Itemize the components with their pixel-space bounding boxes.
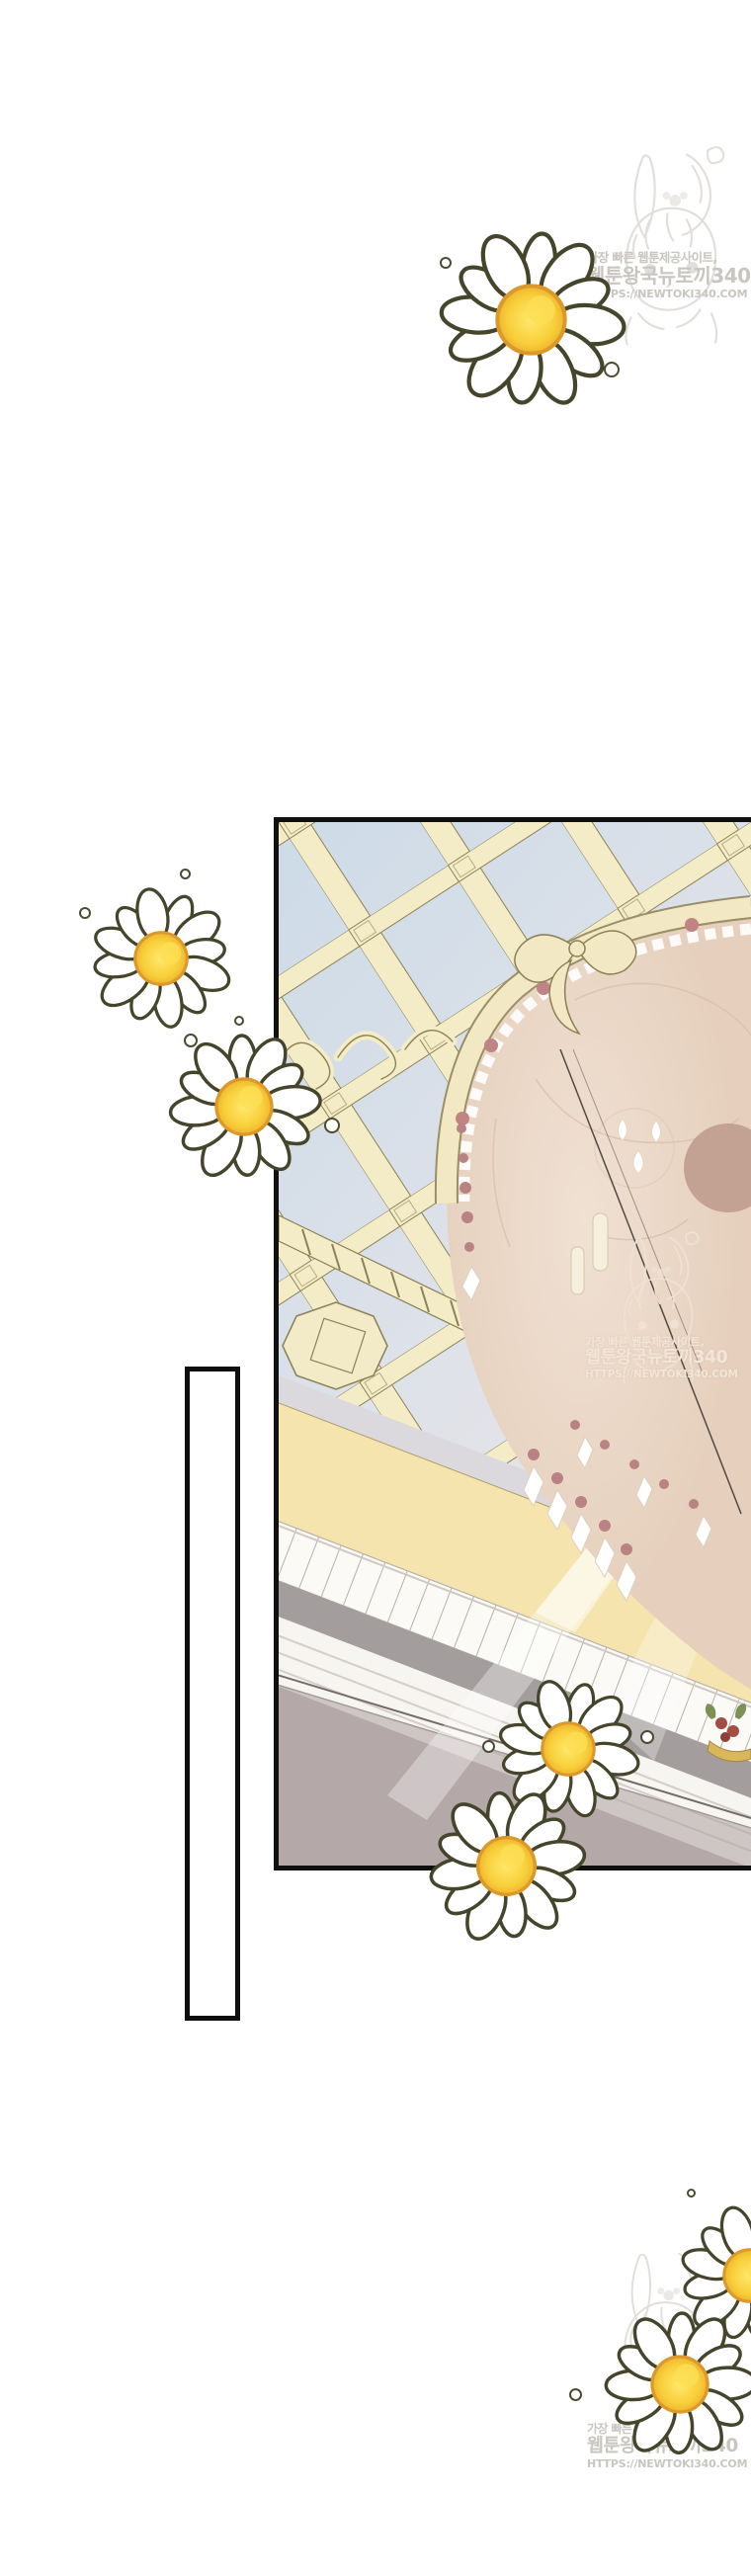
watermark-url: HTTPS://NEWTOKI340.COM <box>585 1369 723 1381</box>
sparkle-dot <box>440 257 452 269</box>
caption-box <box>185 1367 240 2021</box>
sparkle-dot <box>180 869 191 879</box>
sparkle-dot <box>687 2189 696 2198</box>
daisy-flower <box>435 223 627 416</box>
webtoon-page: { "page": {"width": 760, "height": 2607,… <box>0 0 751 2576</box>
sparkle-dot <box>640 1730 654 1744</box>
sparkle-dot <box>604 362 620 377</box>
site-watermark-middle: 가장 빠른 웹툰제공사이트, 웹툰왕국뉴토끼340 HTTPS://NEWTOK… <box>585 1336 723 1381</box>
sparkle-dot <box>79 907 91 919</box>
daisy-flower <box>152 1015 335 1198</box>
daisy-flower <box>593 2297 751 2471</box>
sparkle-dot <box>324 1118 340 1133</box>
sparkle-dot <box>234 1016 244 1026</box>
sparkle-dot <box>569 2388 582 2401</box>
sparkle-dot <box>482 1740 495 1753</box>
sparkle-dot <box>184 1034 198 1047</box>
daisy-flower <box>70 868 252 1049</box>
watermark-sitename: 웹툰왕국뉴토끼340 <box>585 1349 723 1369</box>
